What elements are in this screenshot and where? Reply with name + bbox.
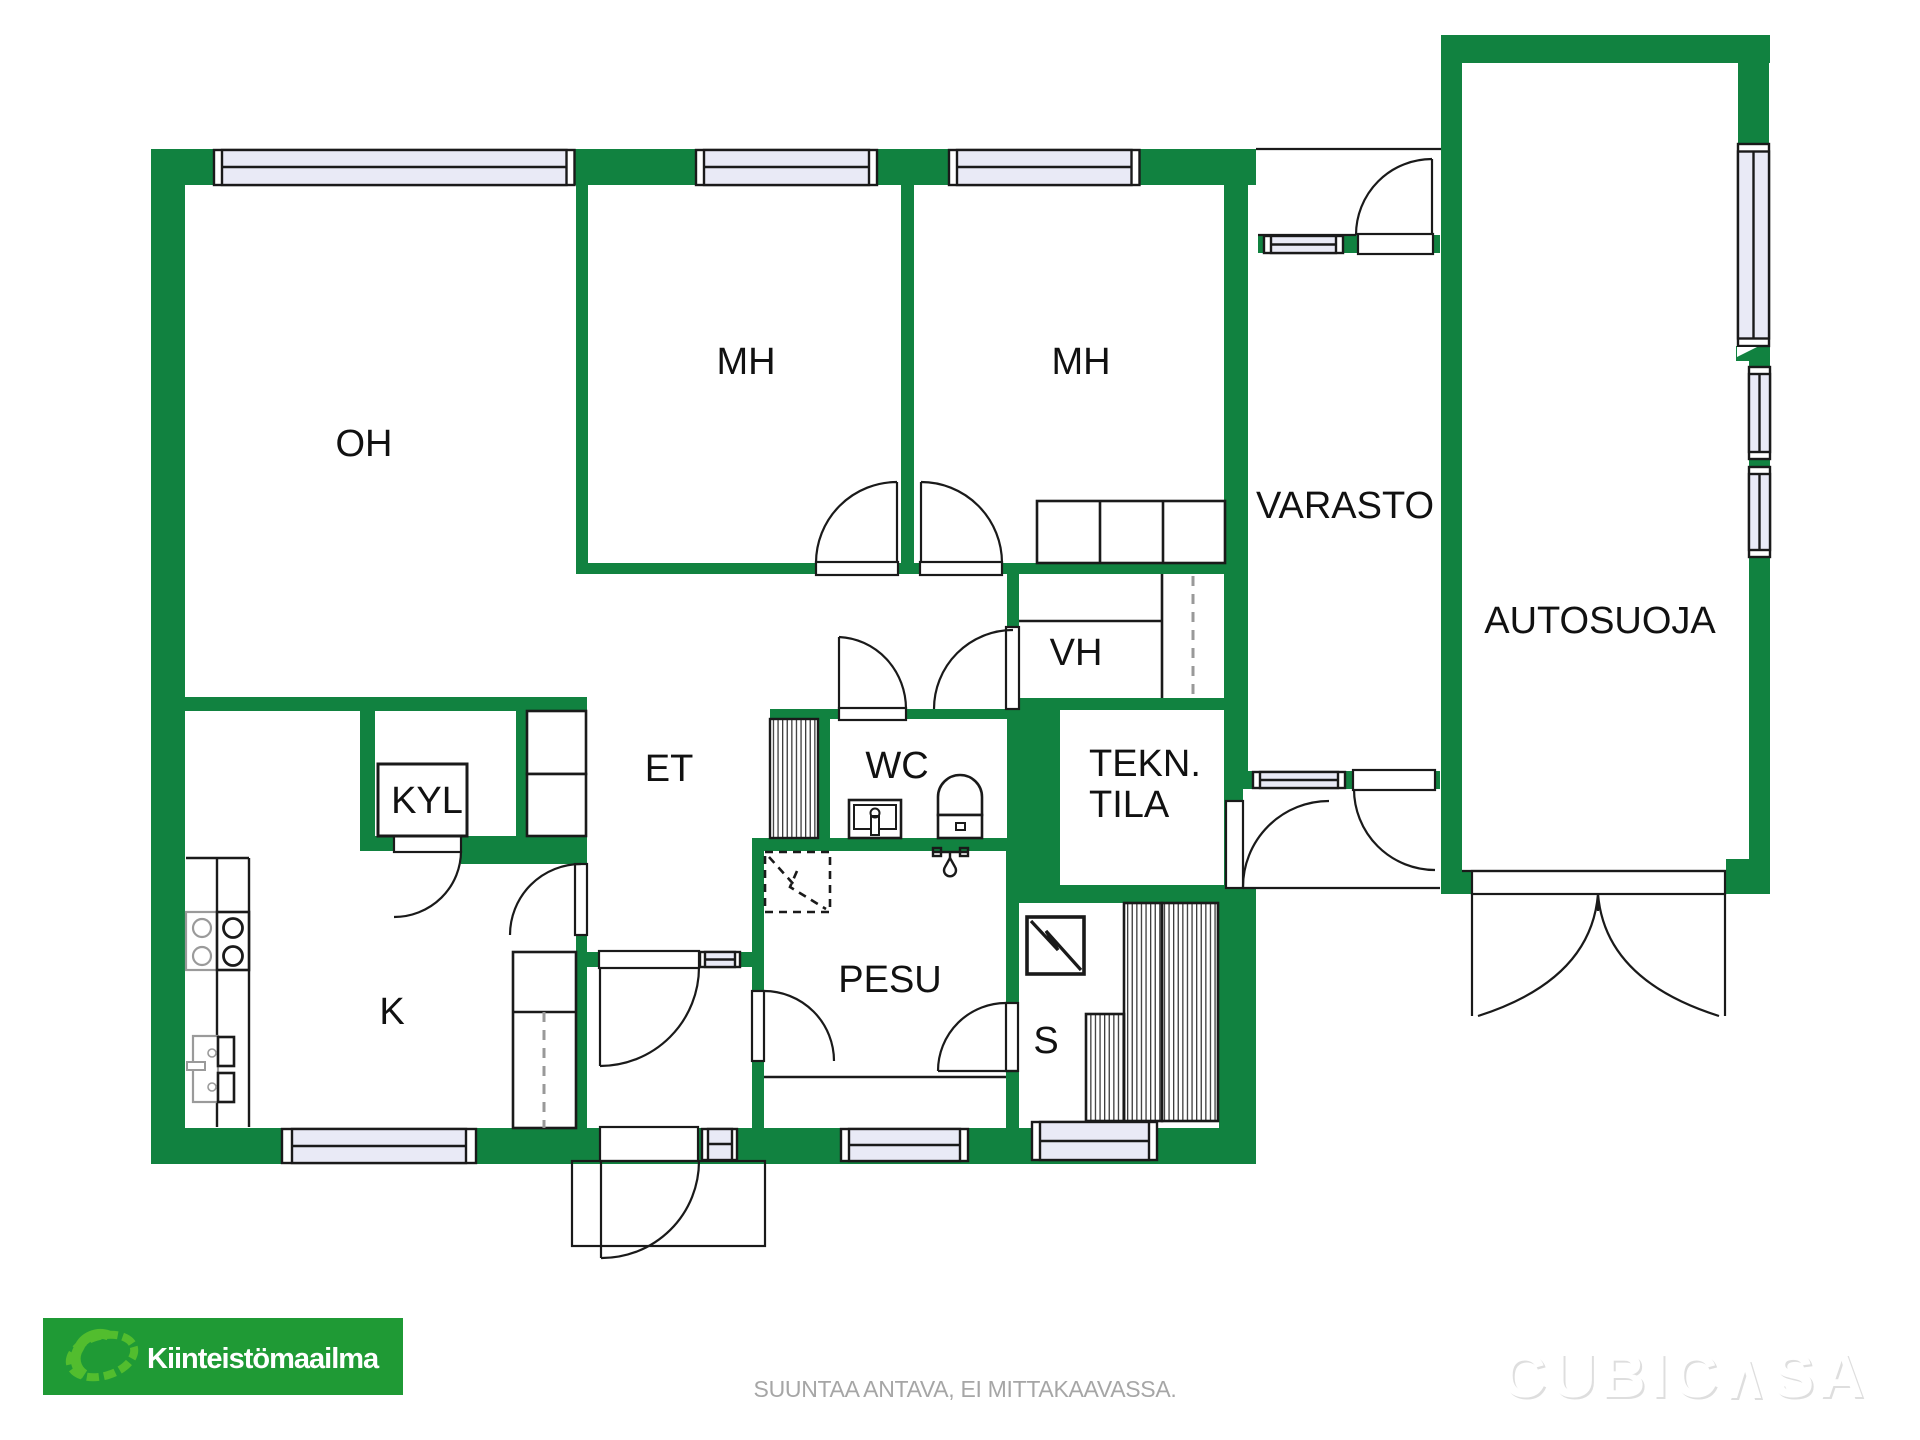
svg-text:TEKN.: TEKN. xyxy=(1089,743,1201,785)
svg-text:S: S xyxy=(1033,1020,1058,1062)
svg-text:MH: MH xyxy=(716,341,775,383)
svg-text:KYL: KYL xyxy=(391,780,463,822)
svg-text:SUUNTAA ANTAVA, EI MITTAKAAVAS: SUUNTAA ANTAVA, EI MITTAKAAVASSA. xyxy=(754,1376,1177,1402)
svg-text:MH: MH xyxy=(1051,341,1110,383)
svg-text:VH: VH xyxy=(1050,632,1103,674)
svg-text:WC: WC xyxy=(865,745,928,787)
svg-text:VARASTO: VARASTO xyxy=(1256,485,1434,527)
svg-text:CUBIC∧SA: CUBIC∧SA xyxy=(1501,1342,1869,1411)
svg-text:AUTOSUOJA: AUTOSUOJA xyxy=(1484,600,1716,642)
svg-text:PESU: PESU xyxy=(838,959,941,1001)
svg-text:K: K xyxy=(379,991,404,1033)
svg-text:TILA: TILA xyxy=(1089,784,1170,826)
svg-text:Kiinteistömaailma: Kiinteistömaailma xyxy=(147,1343,380,1375)
svg-text:ET: ET xyxy=(645,748,694,790)
svg-text:OH: OH xyxy=(336,423,393,465)
